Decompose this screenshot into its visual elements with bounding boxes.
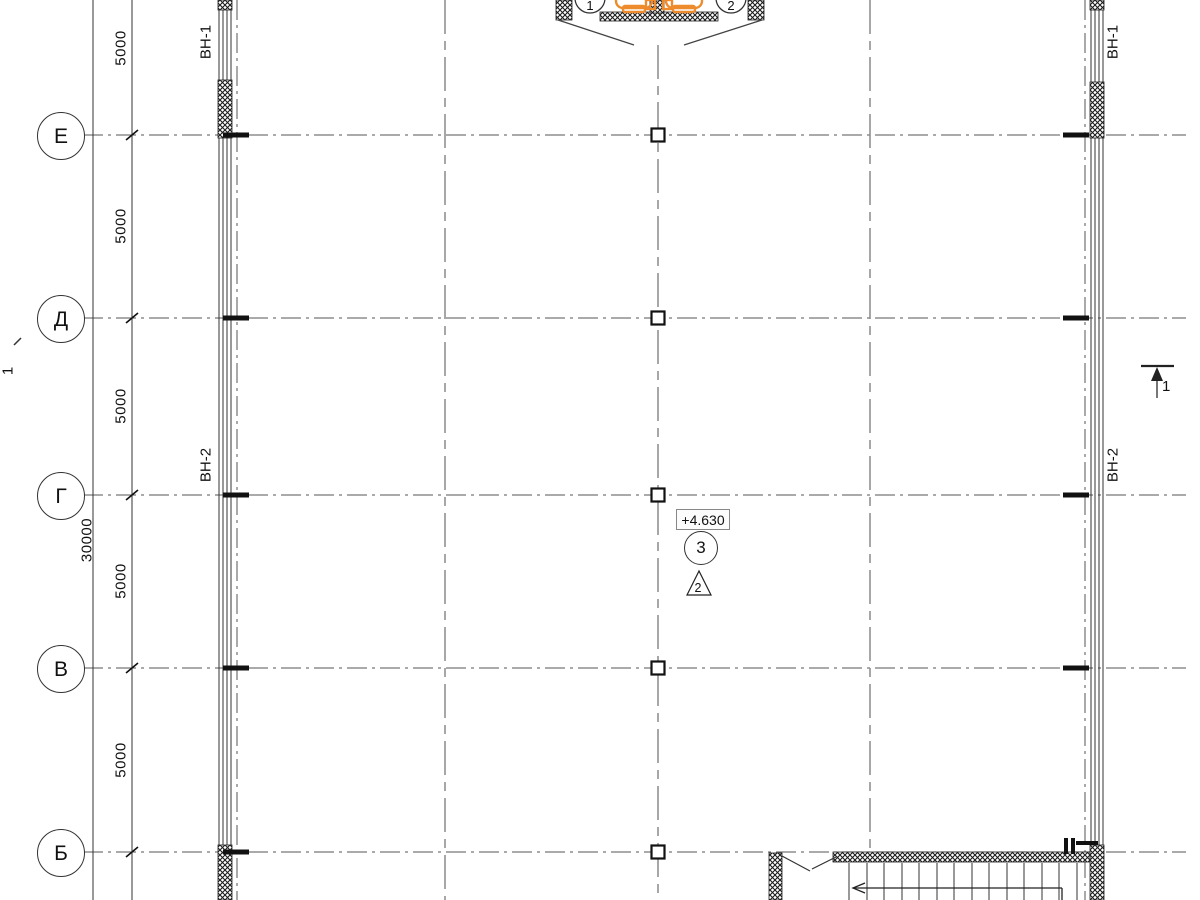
elevation-mark: +4.630 — [676, 509, 730, 530]
window-tag-right-vn1: ВН-1 — [1105, 25, 1122, 59]
section-number-right: 1 — [1162, 378, 1170, 395]
grid-bubble-V: В — [37, 645, 85, 693]
window-tag-right-vn2: ВН-2 — [1105, 448, 1122, 482]
section-arrow-left-icon — [14, 338, 21, 345]
dim-5000-2: 5000 — [113, 208, 130, 243]
top-grid-bubble-2-label: 2 — [719, 0, 743, 13]
grid-bubble-label: Г — [55, 486, 66, 507]
grid-bubble-label: Д — [54, 309, 68, 330]
left-wall — [218, 0, 249, 900]
grid-bubble-E: Е — [37, 112, 85, 160]
top-grid-bubble-1-label: 1 — [578, 0, 602, 13]
grid-bubble-G: Г — [37, 472, 85, 520]
dim-30000-total: 30000 — [79, 518, 96, 562]
grid-bubble-label: Б — [54, 843, 68, 864]
triangle-mark-label: 2 — [690, 581, 706, 595]
stair-treads — [849, 863, 1077, 900]
dim-5000-4: 5000 — [113, 563, 130, 598]
window-tag-left-vn1: ВН-1 — [198, 25, 215, 59]
floor-plan-drawing: Е Д Г В Б 1 2 5000 5000 5000 5000 5000 3… — [0, 0, 1200, 900]
door-leaves — [782, 856, 836, 871]
right-wall — [1063, 0, 1104, 900]
section-number-left: 1 — [0, 367, 17, 375]
grid-bubble-label: Е — [54, 126, 68, 147]
grid-bubble-B: Б — [37, 829, 85, 877]
node-circle-label: 3 — [696, 538, 705, 558]
elevation-value: +4.630 — [681, 512, 724, 528]
dim-5000-1: 5000 — [113, 30, 130, 65]
entrance-splay-lines — [558, 20, 762, 45]
dim-5000-3: 5000 — [113, 388, 130, 423]
grid-bubble-D: Д — [37, 295, 85, 343]
dim-5000-5: 5000 — [113, 742, 130, 777]
node-circle: 3 — [684, 531, 718, 565]
window-tag-left-vn2: ВН-2 — [198, 448, 215, 482]
stair-block — [769, 838, 1098, 900]
grid-bubble-label: В — [54, 659, 68, 680]
plan-linework — [0, 0, 1200, 900]
